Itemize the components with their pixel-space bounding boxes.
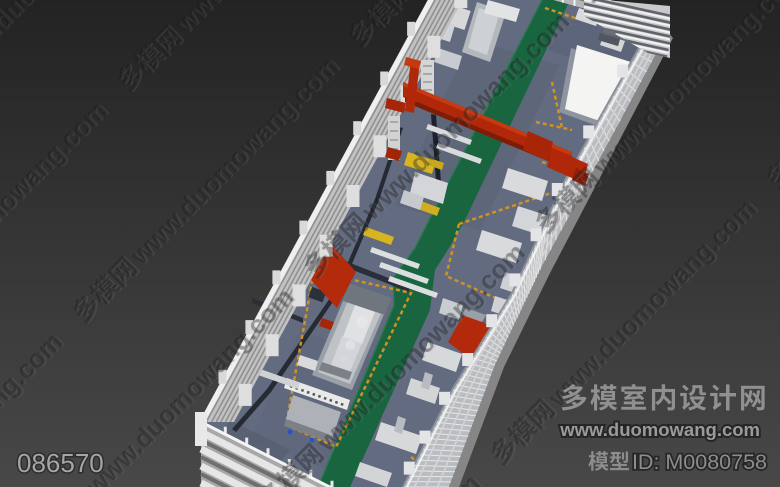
svg-text:www.duomowang.com: www.duomowang.com [559, 419, 760, 440]
svg-text:ID: M0080758: ID: M0080758 [632, 450, 767, 474]
svg-text:086570: 086570 [17, 448, 104, 478]
